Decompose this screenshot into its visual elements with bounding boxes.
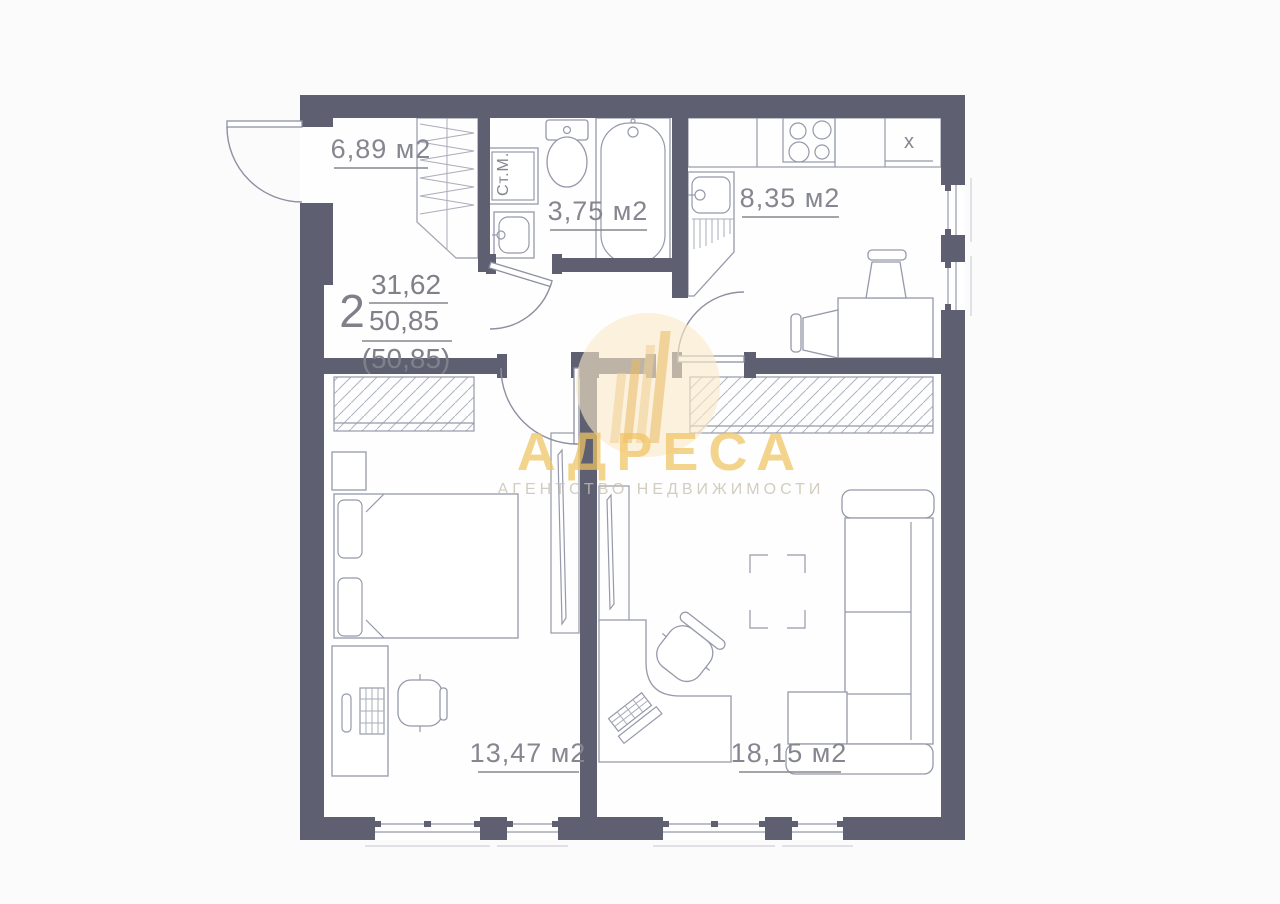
floor-plan-svg: Ст.М. x <box>0 0 1280 904</box>
washing-machine: Ст.М. <box>488 148 538 204</box>
bathtub <box>596 118 670 268</box>
area-label-living-room: 18,15 м2 <box>731 738 848 768</box>
bathroom-sink <box>492 212 534 258</box>
area-label-bathroom: 3,75 м2 <box>548 196 649 226</box>
area-label-hallway: 6,89 м2 <box>331 134 432 164</box>
washing-machine-label: Ст.М. <box>495 152 512 196</box>
area-label-kitchen: 8,35 м2 <box>740 183 841 213</box>
window <box>941 256 971 316</box>
window <box>497 817 568 846</box>
bedroom-wardrobe <box>334 377 474 431</box>
fridge-box: x <box>904 131 914 153</box>
window <box>941 178 971 242</box>
watermark-title: АДРЕСА <box>517 422 805 482</box>
entrance-door <box>227 121 324 203</box>
kitchen-chair-top <box>866 250 906 298</box>
bedroom-desk <box>332 646 388 776</box>
window <box>653 817 775 846</box>
area-label-bedroom: 13,47 м2 <box>470 738 587 768</box>
unit-total-area-alt: (50,85) <box>362 343 451 374</box>
unit-total-area: 50,85 <box>369 305 439 336</box>
kitchen-table <box>838 298 933 358</box>
unit-living-area: 31,62 <box>371 269 441 300</box>
window <box>365 817 490 846</box>
nightstand <box>332 452 366 490</box>
toilet <box>546 120 588 187</box>
kitchen-chair-left <box>791 310 838 358</box>
floor-plan-page: Ст.М. x <box>0 0 1280 904</box>
fridge-label: x <box>904 131 914 153</box>
watermark-subtitle: АГЕНТСТВО НЕДВИЖИМОСТИ <box>498 481 825 498</box>
window <box>782 817 853 846</box>
unit-rooms-count: 2 <box>339 285 365 337</box>
bed <box>334 494 518 638</box>
